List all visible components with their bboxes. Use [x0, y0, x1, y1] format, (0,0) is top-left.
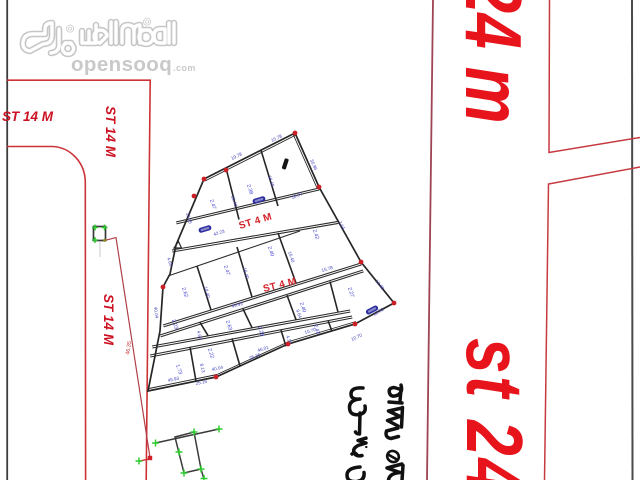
- svg-text:ST 14 M: ST 14 M: [101, 294, 116, 346]
- svg-text:ST 14 M: ST 14 M: [103, 106, 118, 158]
- svg-text:st 24 m: st 24 m: [449, 338, 538, 480]
- svg-text:st 24 m: st 24 m: [448, 0, 537, 124]
- svg-text:ST 14 M: ST 14 M: [2, 109, 54, 124]
